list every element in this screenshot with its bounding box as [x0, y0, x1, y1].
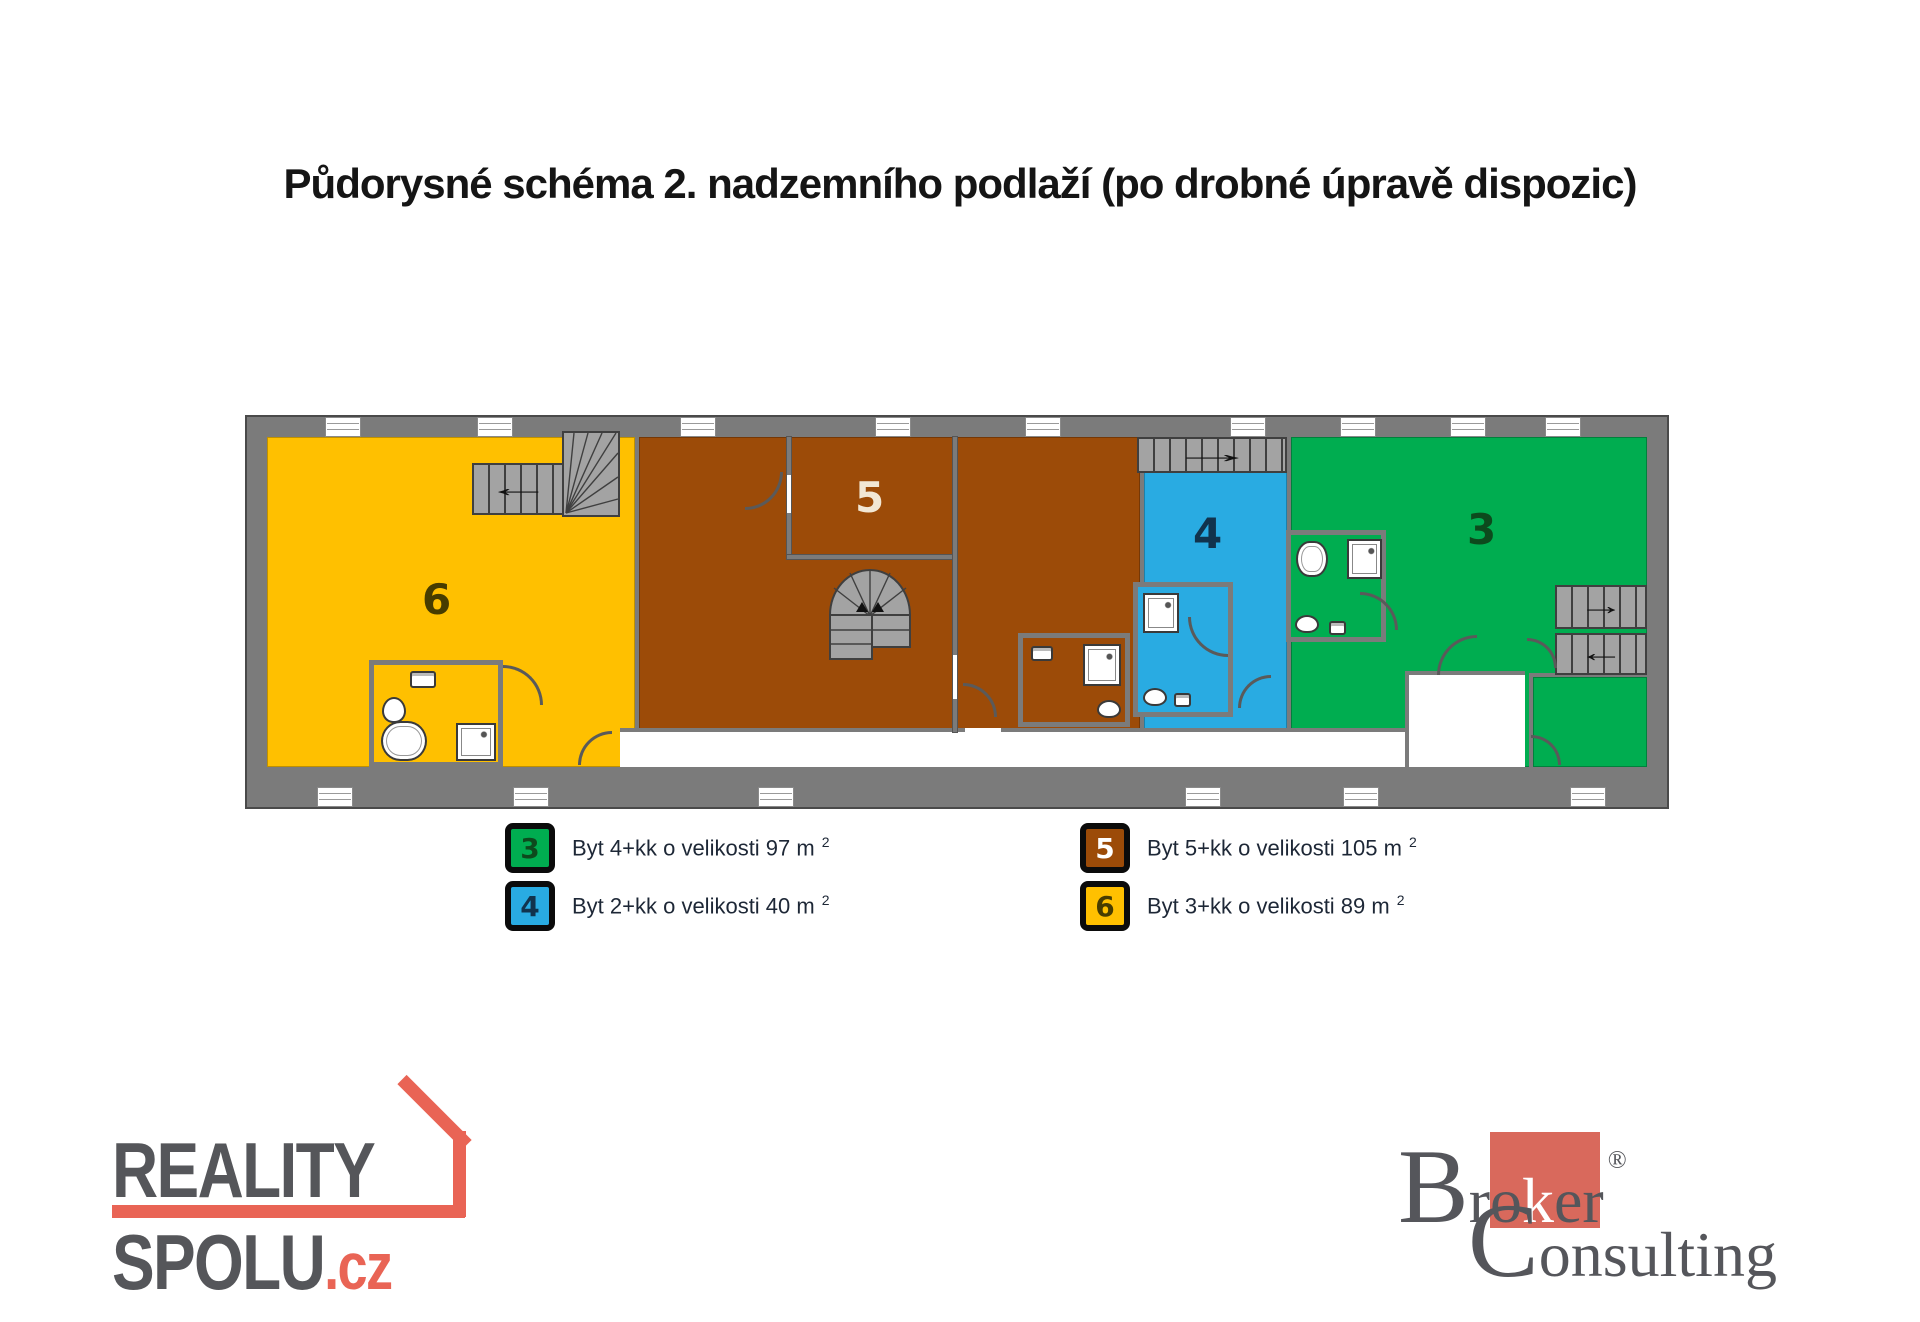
bathroom-apartment-6 [369, 660, 503, 767]
legend-swatch-number: 3 [520, 832, 539, 865]
shower-icon [1347, 539, 1382, 579]
broker-consulting-logo: Broker® Consulting [1398, 1112, 1878, 1312]
staircase-apartment-3-upper: → [1555, 585, 1647, 629]
toilet-icon [1143, 688, 1167, 706]
logo-word-spolu: SPOLU.cz [112, 1223, 391, 1301]
window [1230, 417, 1266, 437]
door-opening [953, 655, 957, 699]
legend-label-text: Byt 3+kk o velikosti 89 m [1147, 894, 1390, 919]
sink-icon [1031, 646, 1053, 661]
legend-label: Byt 4+kk o velikosti 97 m2 [572, 834, 830, 861]
logo-word-consulting: Consulting [1468, 1188, 1777, 1294]
stair-direction-arrow-icon: → [1168, 441, 1256, 467]
door-opening [787, 475, 791, 513]
room-label-4: 4 [1193, 509, 1222, 558]
staircase-apartment-6: ← [472, 463, 564, 515]
legend-label-sup: 2 [1397, 892, 1405, 908]
legend-label: Byt 5+kk o velikosti 105 m2 [1147, 834, 1417, 861]
legend-item-3: 3 Byt 4+kk o velikosti 97 m2 [505, 823, 830, 873]
sink-icon [410, 671, 436, 688]
wall [787, 555, 957, 559]
toilet-icon [382, 697, 406, 723]
shower-icon [1083, 644, 1121, 686]
winder-staircase-apartment-6 [562, 431, 620, 517]
stair-direction-arrow-icon: → [1578, 593, 1625, 619]
legend-swatch-3: 3 [505, 823, 555, 873]
room-label-3: 3 [1467, 505, 1496, 554]
legend-swatch-number: 4 [520, 890, 539, 923]
logo-letter-B: B [1398, 1134, 1469, 1240]
legend-swatch-4: 4 [505, 881, 555, 931]
door-opening [965, 728, 1001, 736]
window [513, 787, 549, 807]
legend-swatch-number: 6 [1095, 890, 1114, 923]
page-title: Půdorysné schéma 2. nadzemního podlaží (… [0, 160, 1920, 208]
legend-label: Byt 3+kk o velikosti 89 m2 [1147, 892, 1405, 919]
stair-direction-arrow-icon: ← [1578, 640, 1625, 666]
legend-label: Byt 2+kk o velikosti 40 m2 [572, 892, 830, 919]
legend-swatch-5: 5 [1080, 823, 1130, 873]
staircase-apartment-3-lower: ← [1555, 633, 1647, 675]
legend-label-text: Byt 2+kk o velikosti 40 m [572, 894, 815, 919]
legend-label-text: Byt 5+kk o velikosti 105 m [1147, 836, 1402, 861]
sink-icon [1174, 693, 1191, 707]
toilet-icon [1097, 700, 1121, 718]
registered-mark-icon: ® [1608, 1148, 1627, 1173]
window [1340, 417, 1376, 437]
sink-icon [1329, 621, 1346, 635]
window [875, 417, 911, 437]
logo-letters-onsulting: onsulting [1539, 1223, 1777, 1287]
staircase-apartment-4: → [1137, 437, 1287, 473]
window [1450, 417, 1486, 437]
window [1545, 417, 1581, 437]
window [1343, 787, 1379, 807]
bathroom-apartment-5 [1018, 633, 1130, 727]
window [680, 417, 716, 437]
legend-label-sup: 2 [822, 892, 830, 908]
legend-item-4: 4 Byt 2+kk o velikosti 40 m2 [505, 881, 830, 931]
bathtub-icon [1296, 541, 1328, 577]
bathtub-icon [381, 721, 427, 761]
logo-word-spolu-text: SPOLU [112, 1218, 324, 1306]
window [1025, 417, 1061, 437]
legend-label-text: Byt 4+kk o velikosti 97 m [572, 836, 815, 861]
window [1570, 787, 1606, 807]
window [758, 787, 794, 807]
legend-swatch-6: 6 [1080, 881, 1130, 931]
window [317, 787, 353, 807]
legend-swatch-number: 5 [1095, 832, 1114, 865]
hallway-pocket [1405, 671, 1525, 767]
winder-staircase-apartment-5 [820, 560, 920, 660]
logo-letter-C: C [1468, 1188, 1539, 1294]
floorplan: ← → [247, 417, 1667, 807]
reality-spolu-logo: REALITY SPOLU.cz [112, 1065, 542, 1305]
window [325, 417, 361, 437]
window [1185, 787, 1221, 807]
legend-item-5: 5 Byt 5+kk o velikosti 105 m2 [1080, 823, 1417, 873]
legend-item-6: 6 Byt 3+kk o velikosti 89 m2 [1080, 881, 1405, 931]
toilet-icon [1295, 615, 1319, 633]
room-label-6: 6 [422, 575, 451, 624]
logo-word-reality: REALITY [112, 1131, 374, 1209]
window [477, 417, 513, 437]
shower-icon [1143, 593, 1179, 633]
stair-direction-arrow-icon: ← [484, 475, 552, 501]
legend-label-sup: 2 [1409, 834, 1417, 850]
corridor [620, 728, 1525, 767]
room-label-5: 5 [855, 473, 884, 522]
logo-tld: .cz [324, 1229, 391, 1303]
shower-icon [456, 723, 496, 761]
page: Půdorysné schéma 2. nadzemního podlaží (… [0, 0, 1920, 1322]
legend-label-sup: 2 [822, 834, 830, 850]
